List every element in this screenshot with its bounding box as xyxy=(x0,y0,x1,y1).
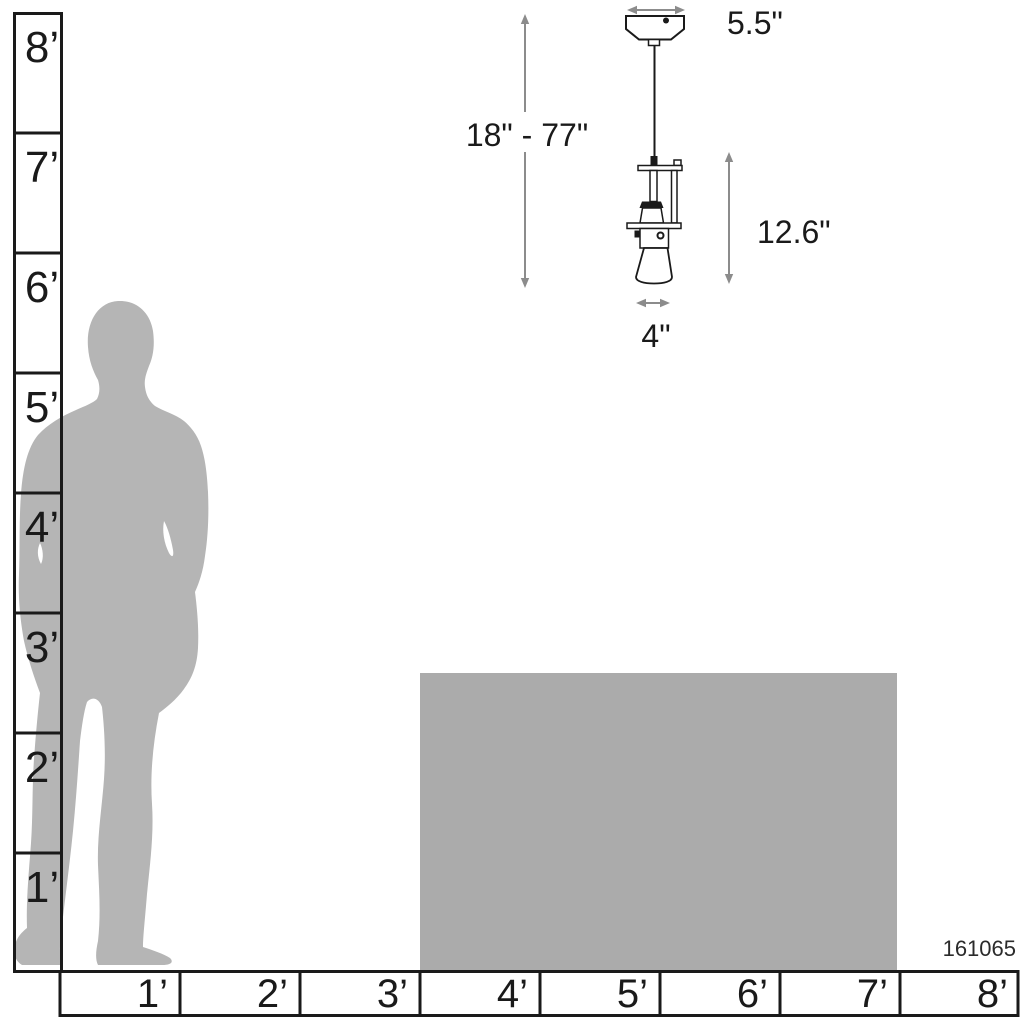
arrow-down-icon xyxy=(521,278,529,288)
horizontal-ruler: 1’ 2’ 3’ 4’ 5’ 6’ 7’ 8’ xyxy=(60,972,1018,1017)
hruler-label: 1’ xyxy=(137,972,168,1016)
center-rod xyxy=(650,171,657,202)
hanging-height-label: 18" - 77" xyxy=(466,117,588,153)
vruler-label: 1’ xyxy=(25,863,59,912)
arrow-down-icon xyxy=(725,274,733,284)
glass-shade-cone xyxy=(636,248,672,284)
vruler-label: 7’ xyxy=(25,143,59,192)
socket-cap xyxy=(640,202,664,209)
vruler-label: 5’ xyxy=(25,383,59,432)
frame-bar-nub xyxy=(674,160,681,166)
cord-grip xyxy=(651,156,658,166)
vruler-label: 6’ xyxy=(25,263,59,312)
lamp-housing xyxy=(640,229,669,249)
side-rod xyxy=(672,171,678,224)
dimension-diagram: 8’ 7’ 6’ 5’ 4’ 3’ 2’ 1’ 1’ 2’ 3’ 4’ 5’ 6… xyxy=(0,0,1024,1024)
vruler-label: 2’ xyxy=(25,743,59,792)
arrow-right-icon xyxy=(675,6,685,14)
mount-flange xyxy=(627,223,681,229)
counter-block xyxy=(420,673,897,971)
arrow-left-icon xyxy=(636,299,646,307)
hruler-label: 3’ xyxy=(377,972,408,1016)
diagram-canvas: 8’ 7’ 6’ 5’ 4’ 3’ 2’ 1’ 1’ 2’ 3’ 4’ 5’ 6… xyxy=(0,0,1024,1024)
dim-fixture-width: 4" xyxy=(636,299,671,354)
canopy-stem xyxy=(649,40,660,46)
fixture-width-label: 4" xyxy=(641,318,670,354)
hruler-label: 6’ xyxy=(737,972,768,1016)
hruler-label: 2’ xyxy=(257,972,288,1016)
hruler-label: 7’ xyxy=(857,972,888,1016)
arrow-up-icon xyxy=(725,152,733,162)
product-number: 161065 xyxy=(943,936,1016,961)
hruler-label: 5’ xyxy=(617,972,648,1016)
socket-housing xyxy=(640,208,664,223)
dim-fixture-height: 12.6" xyxy=(725,152,831,284)
arrow-up-icon xyxy=(521,14,529,24)
hruler-label: 8’ xyxy=(977,972,1008,1016)
canopy-screw-dot xyxy=(663,18,669,24)
housing-notch xyxy=(635,231,641,238)
vruler-label: 8’ xyxy=(25,23,59,72)
pendant-fixture xyxy=(626,16,684,284)
vruler-label: 4’ xyxy=(25,503,59,552)
vruler-label: 3’ xyxy=(25,623,59,672)
dim-hanging-height: 18" - 77" xyxy=(462,14,592,288)
arrow-right-icon xyxy=(660,299,670,307)
canopy xyxy=(626,16,684,40)
canopy-width-label: 5.5" xyxy=(727,5,783,41)
hruler-label: 4’ xyxy=(497,972,528,1016)
fixture-height-label: 12.6" xyxy=(757,214,831,250)
housing-screw xyxy=(658,233,664,239)
arrow-left-icon xyxy=(627,6,637,14)
